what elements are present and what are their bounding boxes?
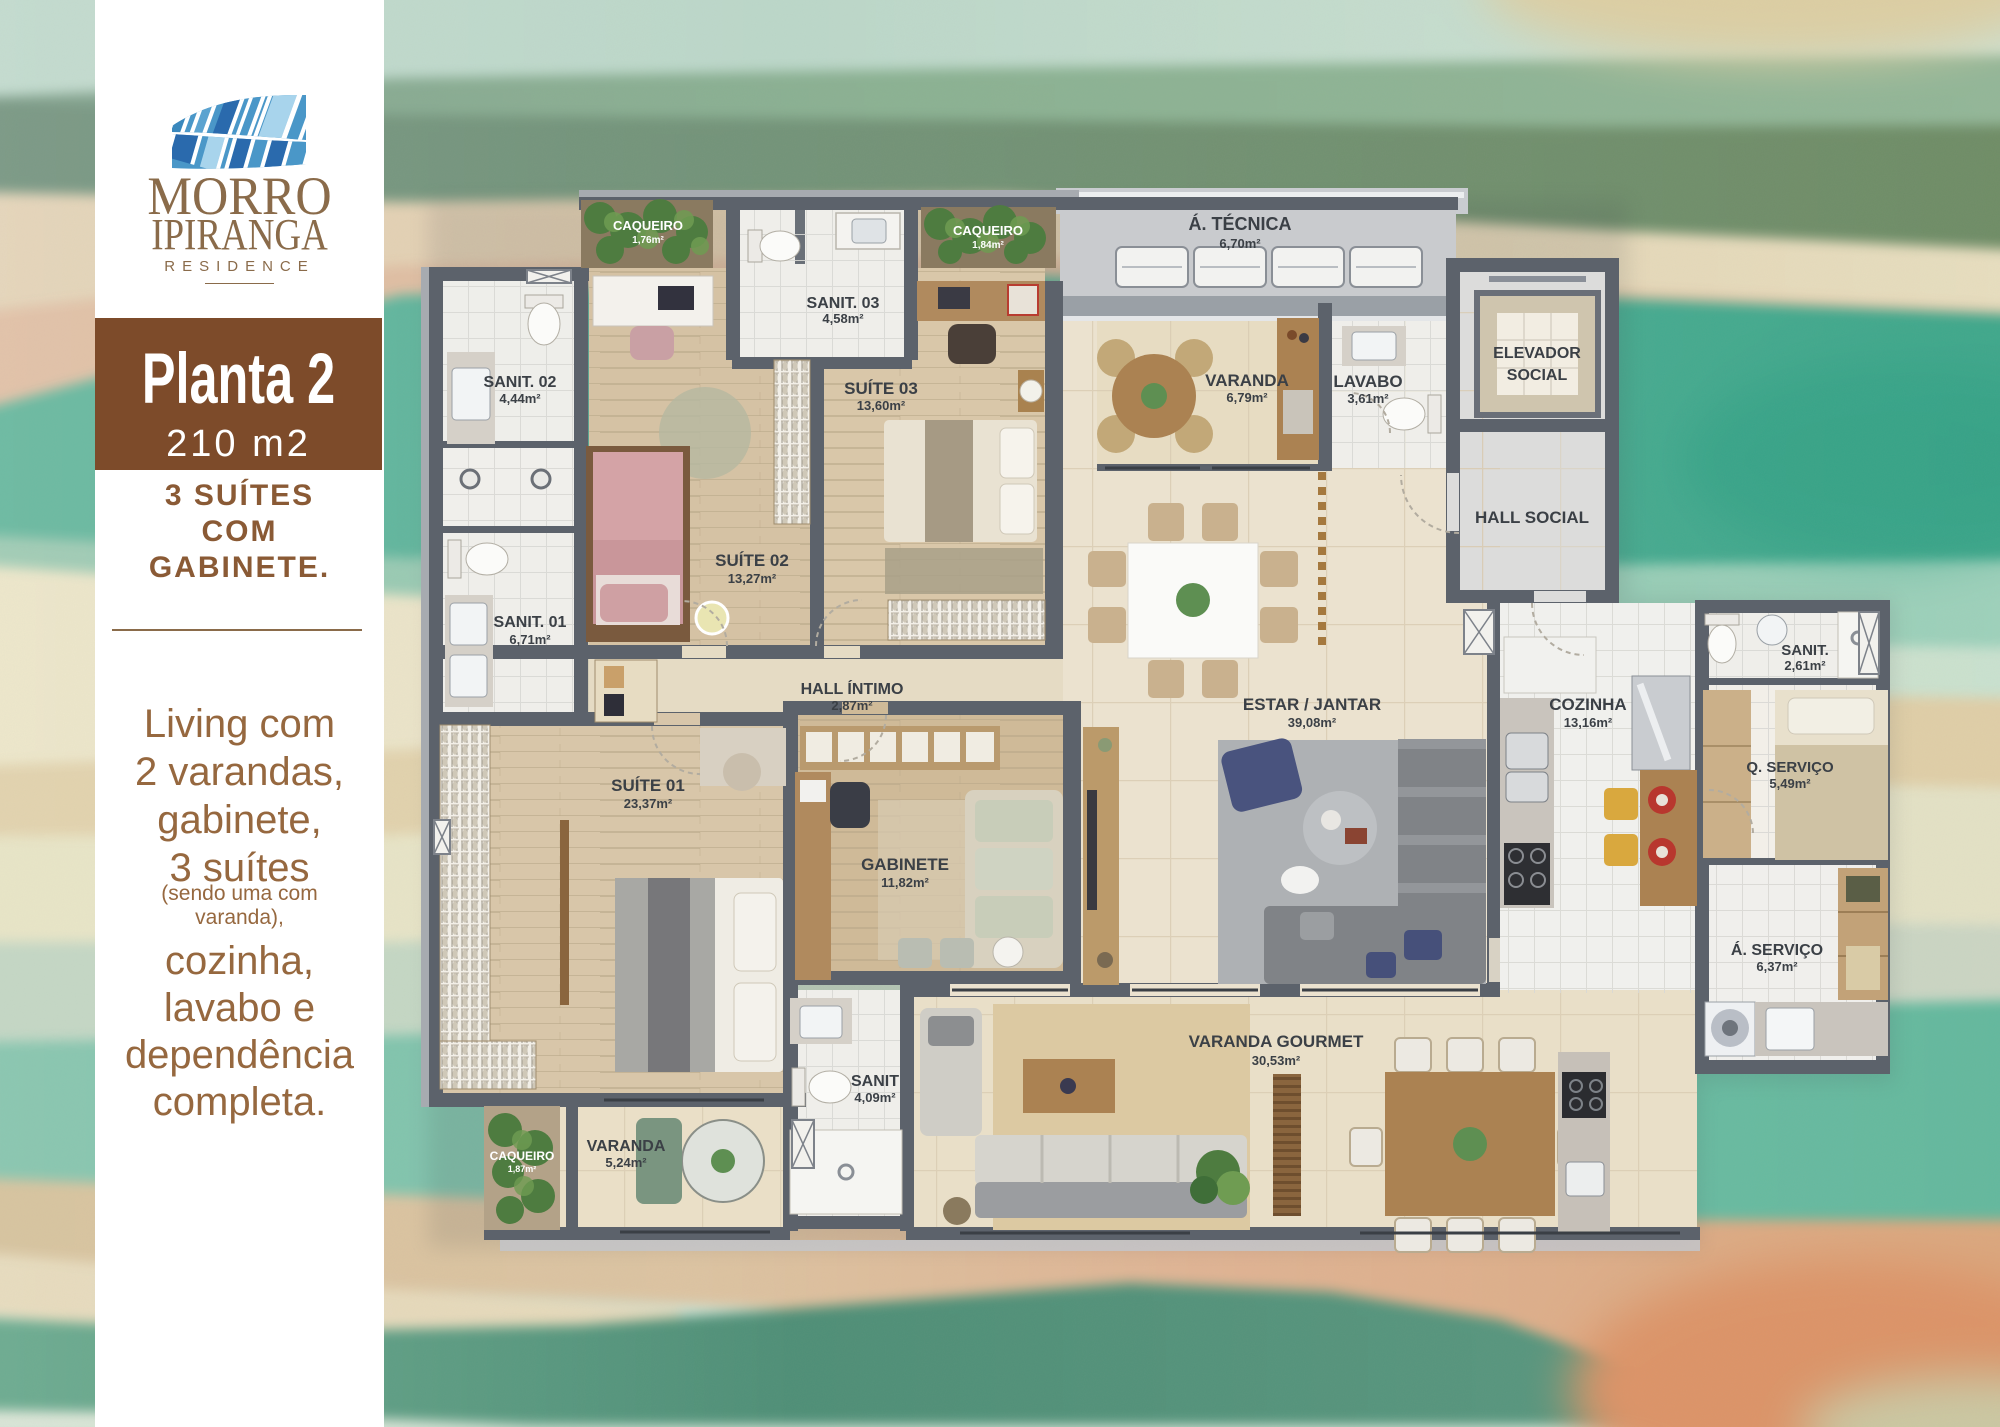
svg-text:CAQUEIRO: CAQUEIRO xyxy=(490,1149,555,1163)
svg-text:6,70m²: 6,70m² xyxy=(1219,236,1261,251)
svg-text:11,82m²: 11,82m² xyxy=(881,875,929,890)
svg-text:SANIT.: SANIT. xyxy=(1781,642,1829,659)
svg-text:6,79m²: 6,79m² xyxy=(1226,390,1268,405)
svg-text:HALL SOCIAL: HALL SOCIAL xyxy=(1475,508,1589,527)
svg-text:4,44m²: 4,44m² xyxy=(499,391,541,406)
svg-text:Q. SERVIÇO: Q. SERVIÇO xyxy=(1746,759,1834,776)
svg-text:SOCIAL: SOCIAL xyxy=(1507,367,1568,384)
svg-text:SUÍTE 03: SUÍTE 03 xyxy=(844,379,918,398)
svg-text:SANIT. 03: SANIT. 03 xyxy=(807,295,880,312)
svg-text:1,84m²: 1,84m² xyxy=(972,240,1004,251)
svg-text:CAQUEIRO: CAQUEIRO xyxy=(613,218,683,233)
svg-text:Á. TÉCNICA: Á. TÉCNICA xyxy=(1189,213,1292,234)
svg-text:4,58m²: 4,58m² xyxy=(822,311,864,326)
svg-text:GABINETE: GABINETE xyxy=(861,855,949,874)
svg-text:39,08m²: 39,08m² xyxy=(1288,715,1337,730)
svg-text:LAVABO: LAVABO xyxy=(1333,372,1402,391)
svg-text:ESTAR / JANTAR: ESTAR / JANTAR xyxy=(1243,695,1381,714)
svg-text:SANIT. 02: SANIT. 02 xyxy=(484,374,557,391)
svg-text:SANIT: SANIT xyxy=(851,1073,899,1090)
svg-text:13,27m²: 13,27m² xyxy=(728,571,777,586)
svg-text:2,61m²: 2,61m² xyxy=(1784,658,1826,673)
svg-text:VARANDA GOURMET: VARANDA GOURMET xyxy=(1189,1032,1364,1051)
svg-text:1,87m²: 1,87m² xyxy=(508,1164,537,1174)
svg-text:SUÍTE 01: SUÍTE 01 xyxy=(611,776,685,795)
svg-text:1,76m²: 1,76m² xyxy=(632,235,664,246)
svg-text:30,53m²: 30,53m² xyxy=(1252,1053,1301,1068)
svg-text:2,87m²: 2,87m² xyxy=(831,698,873,713)
svg-text:Á. SERVIÇO: Á. SERVIÇO xyxy=(1731,940,1823,959)
svg-text:3,61m²: 3,61m² xyxy=(1347,391,1389,406)
svg-text:5,49m²: 5,49m² xyxy=(1769,776,1811,791)
svg-text:SUÍTE 02: SUÍTE 02 xyxy=(715,551,789,570)
svg-text:6,71m²: 6,71m² xyxy=(509,632,551,647)
svg-text:23,37m²: 23,37m² xyxy=(624,796,673,811)
svg-text:CAQUEIRO: CAQUEIRO xyxy=(953,223,1023,238)
svg-text:HALL ÍNTIMO: HALL ÍNTIMO xyxy=(801,679,904,698)
svg-text:4,09m²: 4,09m² xyxy=(854,1090,896,1105)
svg-text:COZINHA: COZINHA xyxy=(1549,695,1626,714)
svg-text:5,24m²: 5,24m² xyxy=(605,1155,647,1170)
svg-text:6,37m²: 6,37m² xyxy=(1756,959,1798,974)
svg-text:SANIT. 01: SANIT. 01 xyxy=(494,614,567,631)
svg-text:13,16m²: 13,16m² xyxy=(1564,715,1613,730)
svg-text:VARANDA: VARANDA xyxy=(1205,371,1289,390)
svg-text:ELEVADOR: ELEVADOR xyxy=(1493,345,1581,362)
svg-text:VARANDA: VARANDA xyxy=(587,1138,666,1155)
svg-text:13,60m²: 13,60m² xyxy=(857,398,906,413)
